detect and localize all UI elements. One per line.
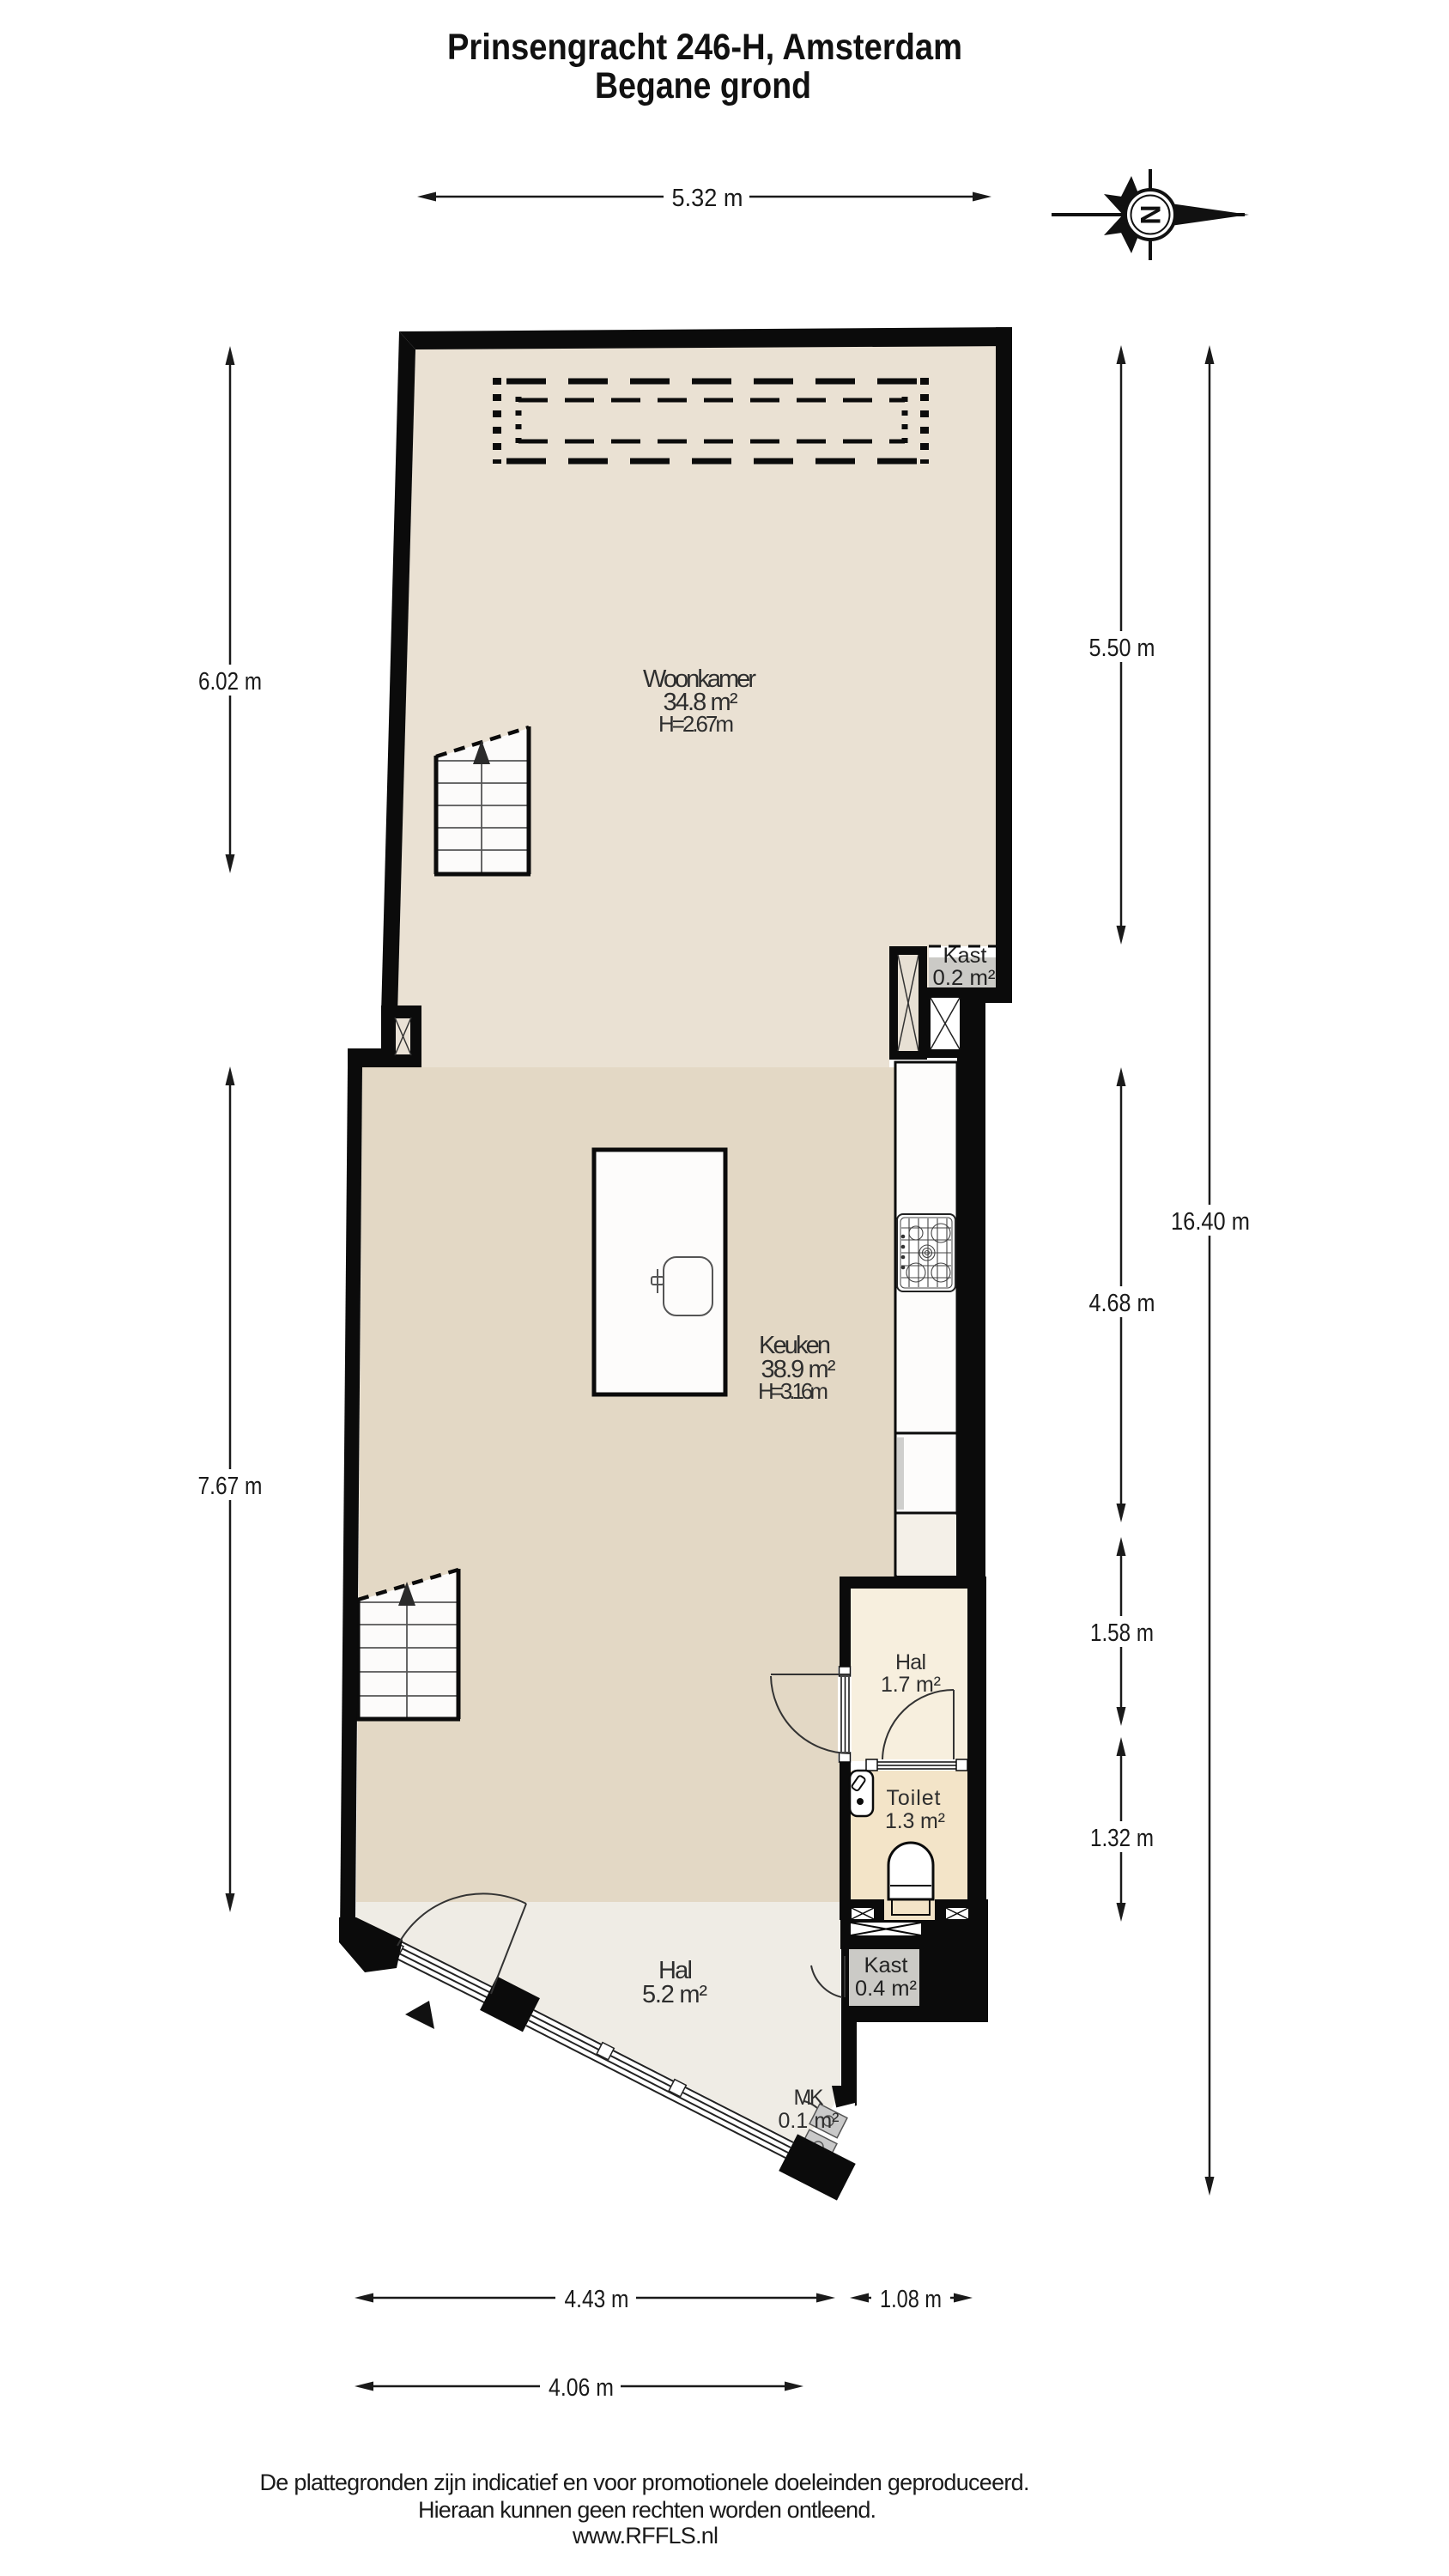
svg-text:www.RFFLS.nl: www.RFFLS.nl	[572, 2523, 718, 2549]
svg-text:1.3 m²: 1.3 m²	[885, 1809, 945, 1833]
svg-text:5.50 m: 5.50 m	[1089, 635, 1155, 662]
svg-text:0.2 m²: 0.2 m²	[933, 966, 996, 990]
svg-text:7.67 m: 7.67 m	[198, 1473, 263, 1500]
svg-text:6.02 m: 6.02 m	[198, 668, 262, 696]
svg-text:4.68 m: 4.68 m	[1089, 1290, 1155, 1317]
svg-text:4.06 m: 4.06 m	[549, 2374, 614, 2402]
svg-text:4.43 m: 4.43 m	[565, 2286, 629, 2313]
svg-text:Toilet: Toilet	[887, 1786, 941, 1810]
svg-text:MK: MK	[794, 2086, 824, 2110]
svg-text:Hieraan kunnen geen rechten wo: Hieraan kunnen geen rechten worden ontle…	[418, 2497, 876, 2523]
svg-text:1.58 m: 1.58 m	[1090, 1619, 1154, 1647]
svg-text:0.4 m²: 0.4 m²	[855, 1977, 917, 2001]
svg-text:1.08 m: 1.08 m	[880, 2286, 942, 2313]
svg-text:Kast: Kast	[864, 1953, 908, 1978]
svg-text:1.32 m: 1.32 m	[1090, 1825, 1154, 1852]
svg-text:H=3.16m: H=3.16m	[758, 1378, 828, 1404]
svg-text:N: N	[1135, 204, 1166, 224]
svg-text:Hal: Hal	[895, 1650, 926, 1674]
svg-text:De plattegronden zijn indicati: De plattegronden zijn indicatief en voor…	[260, 2470, 1030, 2495]
svg-text:Kast: Kast	[943, 944, 987, 968]
svg-text:16.40 m: 16.40 m	[1171, 1208, 1250, 1236]
svg-text:0.1 m²: 0.1 m²	[779, 2109, 840, 2133]
svg-text:H=2.67m: H=2.67m	[658, 711, 734, 737]
svg-text:1.7 m²: 1.7 m²	[881, 1673, 941, 1697]
svg-text:Prinsengracht 246-H, Amsterdam: Prinsengracht 246-H, Amsterdam	[447, 27, 962, 68]
svg-text:5.32 m: 5.32 m	[672, 185, 743, 212]
svg-text:5.2 m²: 5.2 m²	[642, 1981, 707, 2008]
svg-text:Begane grond: Begane grond	[595, 65, 811, 106]
